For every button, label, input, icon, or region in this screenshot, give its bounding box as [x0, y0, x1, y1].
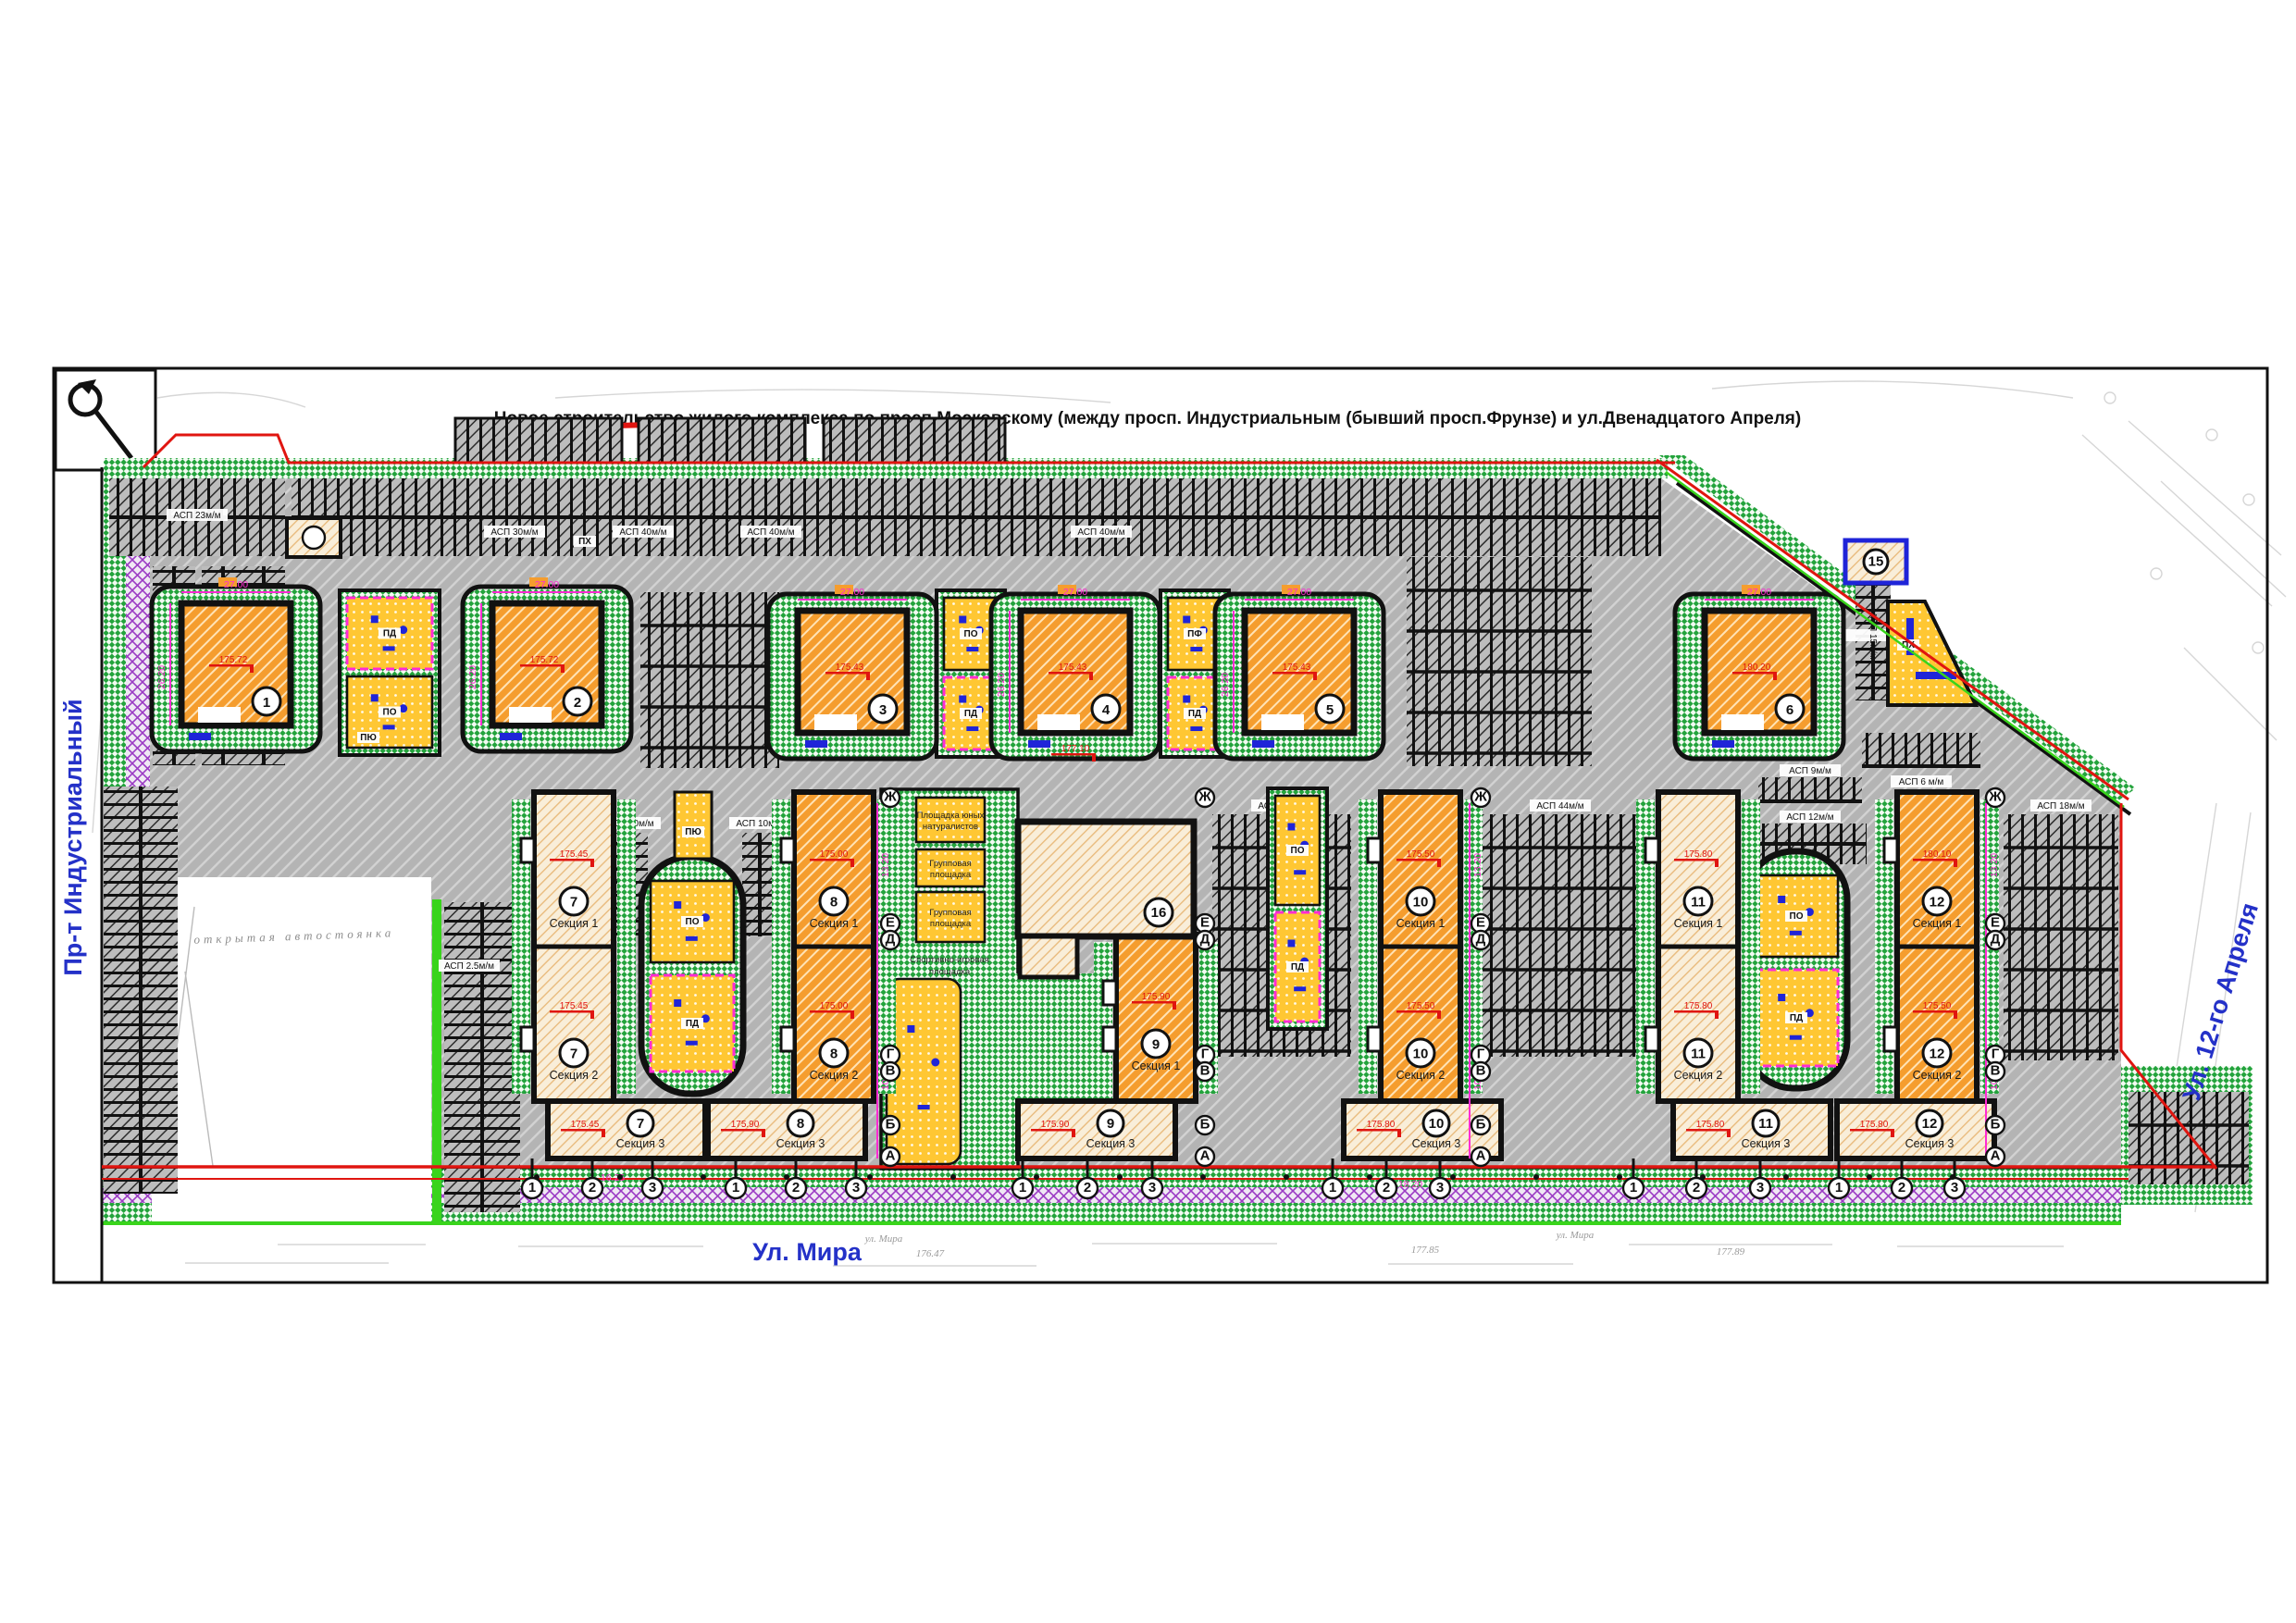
circle-number: 3 — [1756, 1180, 1764, 1196]
tower-entrance-notch — [814, 714, 857, 730]
survey-street-label: ул. Мира — [1556, 1230, 1595, 1241]
elevation-mark: 175.50 — [1407, 849, 1435, 860]
dimension-label: 27.00 — [1747, 587, 1771, 598]
play-equipment-icon — [1287, 824, 1295, 831]
circle-number: А — [886, 1148, 896, 1164]
elevation-mark: 175.45 — [560, 1001, 589, 1011]
section-label: Секция 3 — [776, 1137, 825, 1150]
bollard-dot — [1200, 1174, 1206, 1180]
bollard-dot — [1450, 1174, 1456, 1180]
tower-entrance-notch — [1037, 714, 1080, 730]
circle-number: 3 — [1148, 1180, 1156, 1196]
bollard-dot — [784, 1174, 789, 1180]
elevation-flag — [520, 664, 565, 667]
site-plan-drawing: Новое строительство жилого комплекса по … — [0, 0, 2296, 1623]
dimension-label: 13.20 — [1989, 853, 2000, 877]
entrance-porch — [1884, 1027, 1897, 1051]
parking-row-ticks — [1407, 557, 1592, 766]
circle-number: 1 — [1019, 1180, 1026, 1196]
elevation-flag — [1674, 859, 1719, 861]
circle-number: 11 — [1691, 894, 1706, 910]
circle-number: Д — [1991, 932, 2001, 948]
circle-number: 3 — [852, 1180, 860, 1196]
section-label: Секция 1 — [550, 917, 599, 930]
kindergarten-playground-label: натуралистов — [923, 822, 978, 832]
circle-number: 1 — [1630, 1180, 1637, 1196]
circle-number: 3 — [1951, 1180, 1958, 1196]
survey-mark: 177.89 — [1717, 1246, 1745, 1258]
play-equipment-icon — [1183, 696, 1190, 703]
circle-number: Д — [886, 932, 896, 948]
elevation-flag — [1954, 1010, 1957, 1019]
tower-entrance-notch — [1721, 714, 1764, 730]
bollard-dot — [1284, 1174, 1289, 1180]
playground-code-label: ПХ — [578, 537, 591, 547]
play-equipment-icon — [1790, 1035, 1802, 1040]
circle-number: Д — [1200, 932, 1210, 948]
elevation-mark: 175.90 — [1142, 992, 1171, 1002]
elevation-flag — [550, 1010, 594, 1013]
elevation-flag — [550, 859, 594, 861]
elevation-mark: 175.90 — [731, 1120, 760, 1130]
parking-row-ticks — [1862, 733, 1980, 766]
circle-number: 7 — [570, 1046, 577, 1061]
elevation-flag — [762, 1129, 765, 1137]
entrance-porch — [781, 838, 794, 862]
slab-green-flank — [617, 799, 636, 1094]
parking-capacity-label: АСП 6 м/м — [1899, 777, 1944, 787]
elevation-flag — [850, 859, 854, 867]
bollard-dot — [1367, 1174, 1372, 1180]
circle-number: Е — [886, 915, 895, 931]
section-label: Секция 3 — [1086, 1137, 1136, 1150]
circle-number: 2 — [792, 1180, 800, 1196]
bollard-dot — [701, 1174, 706, 1180]
elevation-mark: 177.10 — [1061, 744, 1090, 754]
street-label-mira: Ул. Мира — [752, 1238, 863, 1266]
circle-number: Б — [1200, 1117, 1210, 1133]
elevation-flag — [561, 1129, 605, 1132]
tower-entrance-notch — [509, 707, 552, 723]
entrance-canopy — [189, 733, 211, 740]
bollard-dot — [617, 1174, 623, 1180]
circle-number: Г — [1201, 1047, 1210, 1062]
circle-number: Е — [1200, 915, 1210, 931]
entrance-canopy — [805, 740, 827, 748]
parking-capacity-label: АСП 18м/м — [2037, 801, 2084, 811]
building-slab-section — [1116, 935, 1196, 1101]
circle-number: 8 — [830, 894, 838, 910]
kindergarten-playground-label: Групповая — [929, 908, 971, 918]
elevation-flag — [1397, 1129, 1401, 1137]
bollard-dot — [1117, 1174, 1123, 1180]
circle-number: Ж — [1473, 789, 1487, 805]
elevation-flag — [1954, 859, 1957, 867]
circle-number: 11 — [1758, 1116, 1773, 1132]
playground-code-label: ПД — [383, 629, 396, 639]
play-equipment-icon — [371, 694, 379, 701]
garage-row-ticks — [639, 418, 805, 463]
play-equipment-icon — [674, 999, 681, 1007]
entrance-canopy — [500, 733, 522, 740]
circle-number: В — [886, 1063, 896, 1079]
play-equipment-icon — [918, 1105, 930, 1109]
playground-code-label: ПД — [686, 1019, 699, 1029]
circle-number: 3 — [1436, 1180, 1444, 1196]
lawn-edge-line — [432, 899, 441, 1223]
circle-number: 1 — [732, 1180, 739, 1196]
entrance-porch — [521, 838, 534, 862]
entrance-porch — [1645, 838, 1658, 862]
circle-number: 1 — [263, 695, 270, 711]
entrance-porch — [1645, 1027, 1658, 1051]
section-label: Секция 3 — [616, 1137, 665, 1150]
parking-row-ticks — [2128, 1092, 2249, 1184]
circle-number: 1 — [1835, 1180, 1843, 1196]
circle-number: Б — [886, 1117, 896, 1133]
bollard-dot — [1533, 1174, 1539, 1180]
tower-entrance-notch — [198, 707, 241, 723]
circle-number: 1 — [528, 1180, 536, 1196]
elevation-mark: 175.00 — [820, 849, 849, 860]
elevation-mark: 175.80 — [1684, 849, 1713, 860]
elevation-flag — [1850, 1129, 1894, 1132]
circle-number: Ж — [883, 789, 897, 805]
play-equipment-icon — [1294, 870, 1306, 874]
entrance-canopy — [1712, 740, 1734, 748]
street-label-industrialny: Пр-т Индустриальный — [59, 699, 87, 975]
section-label: Секция 1 — [1674, 917, 1723, 930]
circle-number: 10 — [1429, 1116, 1445, 1132]
entrance-porch — [1884, 838, 1897, 862]
entrance-porch — [1103, 1027, 1116, 1051]
section-label: Секция 1 — [1132, 1059, 1181, 1072]
elevation-mark: 175.43 — [1283, 663, 1311, 673]
dimension-label: 18.20 — [1398, 1179, 1422, 1190]
dimension-label: 27.00 — [1063, 587, 1087, 598]
elevation-flag — [1031, 1129, 1075, 1132]
lawn-edge-line — [102, 1221, 2121, 1225]
kindergarten-playground-label: Групповая — [929, 859, 971, 869]
section-label: Секция 2 — [550, 1069, 599, 1082]
elevation-flag — [1051, 753, 1096, 756]
circle-number: Ж — [1988, 789, 2002, 805]
elevation-mark: 175.72 — [530, 655, 559, 665]
section-label: Секция 2 — [1913, 1069, 1962, 1082]
circle-number: Б — [1991, 1117, 2001, 1133]
playground-code-label: ПД — [964, 709, 977, 719]
play-equipment-icon — [966, 726, 978, 731]
playground-code-label: ПД — [1188, 709, 1201, 719]
elevation-flag — [810, 1010, 854, 1013]
play-equipment-icon — [1778, 896, 1785, 903]
playground-code-label: ПО — [686, 917, 700, 927]
section-label: Секция 1 — [1913, 917, 1962, 930]
bollard-dot — [1700, 1174, 1706, 1180]
playground-neck — [675, 792, 712, 859]
circle-number: 2 — [1084, 1180, 1091, 1196]
elevation-flag — [1437, 1010, 1441, 1019]
elevation-flag — [1727, 1129, 1731, 1137]
elevation-mark: 175.80 — [1367, 1120, 1396, 1130]
bollard-dot — [867, 1174, 873, 1180]
tower-entrance-notch — [1261, 714, 1304, 730]
circle-number: Г — [1477, 1047, 1485, 1062]
entrance-porch — [1368, 838, 1381, 862]
elevation-mark: 175.90 — [1041, 1120, 1070, 1130]
parking-capacity-label: АСП 12м/м — [1786, 812, 1833, 823]
playground-code-label: ПЮ — [685, 827, 701, 837]
play-equipment-icon — [1190, 726, 1202, 731]
circle-number: А — [1476, 1148, 1486, 1164]
circle-number: В — [1200, 1063, 1210, 1079]
elevation-flag — [1773, 672, 1777, 680]
dimension-label: 26.20 — [156, 665, 168, 689]
elevation-flag — [1732, 672, 1777, 675]
circle-number: 7 — [637, 1116, 644, 1132]
elevation-flag — [1049, 672, 1093, 675]
play-equipment-icon — [931, 1059, 939, 1067]
dimension-label: 27.00 — [840, 587, 864, 598]
elevation-flag — [825, 672, 870, 675]
circle-number: 2 — [1898, 1180, 1905, 1196]
section-label: Секция 3 — [1742, 1137, 1791, 1150]
elevation-mark: 175.50 — [1407, 1001, 1435, 1011]
elevation-mark: 180.10 — [1923, 849, 1952, 860]
dimension-label: 26.20 — [996, 673, 1007, 697]
parking-capacity-label: АСП 40м/м — [1077, 527, 1124, 538]
parking-row-ticks — [1479, 814, 1642, 1057]
circle-number: 15 — [1868, 554, 1884, 570]
elevation-mark: 175.80 — [1860, 1120, 1889, 1130]
circle-number: Е — [1476, 915, 1485, 931]
play-equipment-icon — [383, 646, 395, 650]
slab-green-flank — [1094, 942, 1112, 1094]
elevation-flag — [1089, 672, 1093, 680]
elevation-mark: 175.45 — [560, 849, 589, 860]
circle-number: 12 — [1930, 894, 1945, 910]
circle-number: А — [1991, 1148, 2001, 1164]
north-arrow — [56, 370, 155, 470]
elevation-mark: 175.80 — [1684, 1001, 1713, 1011]
circle-number: 6 — [1786, 702, 1793, 718]
circle-number: 3 — [879, 702, 887, 718]
elevation-mark: 175.45 — [571, 1120, 600, 1130]
kindergarten-annex — [1020, 936, 1077, 977]
play-equipment-icon — [959, 696, 966, 703]
elevation-flag — [1913, 859, 1957, 861]
elevation-flag — [250, 664, 254, 673]
entrance-canopy — [1028, 740, 1050, 748]
parking-row-ticks — [1758, 777, 1862, 801]
garage-row-ticks — [455, 418, 622, 463]
entrance-porch — [781, 1027, 794, 1051]
playground-code-label: ПО — [383, 708, 397, 718]
play-equipment-icon — [966, 647, 978, 651]
circle-number: 2 — [1383, 1180, 1390, 1196]
playground-code-label: ПФ — [1187, 629, 1202, 639]
bollard-dot — [1867, 1174, 1872, 1180]
elevation-flag — [1396, 1010, 1441, 1013]
bollard-dot — [1783, 1174, 1789, 1180]
entrance-porch — [521, 1027, 534, 1051]
section-label: Секция 3 — [1412, 1137, 1461, 1150]
bollard-dot — [1617, 1174, 1622, 1180]
dimension-label: 26.20 — [467, 665, 478, 689]
elevation-flag — [1396, 859, 1441, 861]
circle-number: 9 — [1152, 1036, 1160, 1052]
parking-capacity-label: АСП 2.5м/м — [444, 961, 494, 972]
circle-number: 2 — [589, 1180, 596, 1196]
play-equipment-icon — [1183, 616, 1190, 624]
elevation-mark: 175.80 — [1696, 1120, 1725, 1130]
circle-number: А — [1200, 1148, 1210, 1164]
elevation-flag — [1891, 1129, 1894, 1137]
elevation-mark: 175.50 — [1923, 1001, 1952, 1011]
circle-number: 16 — [1151, 905, 1167, 921]
elevation-flag — [1715, 859, 1719, 867]
parking-row-ticks — [2004, 814, 2118, 1060]
dimension-label: 13.20 — [1472, 853, 1483, 877]
play-equipment-icon — [1790, 931, 1802, 935]
elevation-flag — [810, 859, 854, 861]
section-label: Секция 2 — [810, 1069, 859, 1082]
section-label: Секция 3 — [1905, 1137, 1955, 1150]
elevation-flag — [721, 1129, 765, 1132]
bollard-dot — [950, 1174, 956, 1180]
elevation-flag — [1715, 1010, 1719, 1019]
elevation-mark: 175.72 — [219, 655, 248, 665]
circle-number: 10 — [1413, 1046, 1429, 1061]
circle-number: 9 — [1107, 1116, 1114, 1132]
entrance-porch — [1103, 981, 1116, 1005]
elevation-flag — [1173, 1001, 1176, 1010]
play-equipment-icon — [959, 616, 966, 624]
parking-capacity-label: АСП 44м/м — [1536, 801, 1583, 811]
slab-green-flank — [1742, 799, 1760, 1094]
elevation-flag — [1913, 1010, 1957, 1013]
elevation-flag — [866, 672, 870, 680]
survey-street-label: ул. Мира — [864, 1233, 903, 1245]
elevation-mark: 175.00 — [820, 1001, 849, 1011]
section-label: Секция 2 — [1674, 1069, 1723, 1082]
elevation-flag — [1357, 1129, 1401, 1132]
parking-row-ticks — [640, 592, 779, 768]
kindergarten-playground-label: площадка — [929, 967, 971, 977]
playground-code-label: ПО — [1790, 911, 1804, 922]
circle-number: 11 — [1691, 1046, 1706, 1061]
kindergarten-playground-label: площадка — [930, 919, 972, 929]
elevation-flag — [1132, 1001, 1176, 1004]
play-equipment-icon — [907, 1025, 914, 1033]
circle-number: Г — [887, 1047, 895, 1062]
circle-number: В — [1476, 1063, 1486, 1079]
bollard-dot — [1034, 1174, 1039, 1180]
play-equipment-icon — [686, 1041, 698, 1046]
parking-capacity-label: АСП 40м/м — [747, 527, 794, 538]
survey-mark: 177.85 — [1411, 1245, 1440, 1256]
elevation-mark: 180.20 — [1743, 663, 1771, 673]
elevation-flag — [1313, 672, 1317, 680]
parking-capacity-label: АСП 9м/м — [1789, 766, 1831, 776]
bollard-dot — [1950, 1174, 1955, 1180]
play-equipment-icon — [686, 936, 698, 941]
dimension-label: 13.20 — [880, 853, 891, 877]
circle-number: Ж — [1198, 789, 1211, 805]
circle-number: 4 — [1102, 702, 1111, 718]
elevation-flag — [590, 1010, 594, 1019]
elevation-flag — [1072, 1129, 1075, 1137]
circle-number: 12 — [1930, 1046, 1945, 1061]
playground-code-label: ПЮ — [360, 733, 377, 743]
playground-code-label: ПД — [1790, 1013, 1803, 1023]
parking-capacity-label: АСП 40м/м — [619, 527, 666, 538]
play-equipment-icon — [371, 615, 379, 623]
play-equipment-icon — [1294, 986, 1306, 991]
play-equipment-icon — [674, 901, 681, 909]
play-equipment-icon — [1778, 994, 1785, 1001]
circle-number: Е — [1991, 915, 2000, 931]
dimension-label: 27.00 — [224, 579, 248, 590]
playground-code-label: ПО — [964, 629, 978, 639]
circle-number: 5 — [1326, 702, 1334, 718]
play-equipment-icon — [1287, 940, 1295, 948]
dimension-label: 26.20 — [1220, 673, 1231, 697]
section-label: Секция 1 — [1396, 917, 1446, 930]
elevation-flag — [1674, 1010, 1719, 1013]
elevation-flag — [209, 664, 254, 667]
elevation-flag — [1272, 672, 1317, 675]
circle-number: 8 — [830, 1046, 838, 1061]
circle-number: Г — [1992, 1047, 2000, 1062]
bollard-dot — [534, 1174, 540, 1180]
circle-number: 12 — [1922, 1116, 1938, 1132]
circle-number: 2 — [574, 695, 581, 711]
playground-code-label: ПО — [1291, 846, 1305, 856]
elevation-flag — [850, 1010, 854, 1019]
play-equipment-icon — [1190, 647, 1202, 651]
elevation-mark: 175.43 — [836, 663, 864, 673]
circle-number: Б — [1476, 1117, 1486, 1133]
circle-number: Д — [1476, 932, 1486, 948]
playground-code-label: ПД — [1291, 962, 1304, 973]
circle-number: 10 — [1413, 894, 1429, 910]
survey-mark: 176.47 — [916, 1248, 945, 1259]
elevation-flag — [590, 859, 594, 867]
circle-number: 8 — [797, 1116, 804, 1132]
circle-number: В — [1991, 1063, 2001, 1079]
parking-capacity-label: АСП 30м/м — [490, 527, 538, 538]
elevation-flag — [1092, 753, 1096, 762]
kindergarten-playground-label: Спортивно-игровая — [910, 955, 988, 965]
kindergarten-playground-label: Площадка юных — [917, 811, 985, 821]
elevation-flag — [1437, 859, 1441, 867]
kindergarten-playground-label: площадка — [930, 870, 972, 880]
building-number-badge — [303, 527, 325, 549]
circle-number: 1 — [1329, 1180, 1336, 1196]
elevation-flag — [561, 664, 565, 673]
dimension-label: 27.00 — [1287, 587, 1311, 598]
parking-capacity-label: АСП 23м/м — [173, 511, 220, 521]
elevation-flag — [602, 1129, 605, 1137]
circle-number: 3 — [649, 1180, 656, 1196]
circle-number: 7 — [570, 894, 577, 910]
elevation-mark: 175.43 — [1059, 663, 1087, 673]
entrance-canopy — [1252, 740, 1274, 748]
garage-row-ticks — [824, 418, 1005, 463]
play-equipment-icon — [383, 725, 395, 729]
section-label: Секция 1 — [810, 917, 859, 930]
